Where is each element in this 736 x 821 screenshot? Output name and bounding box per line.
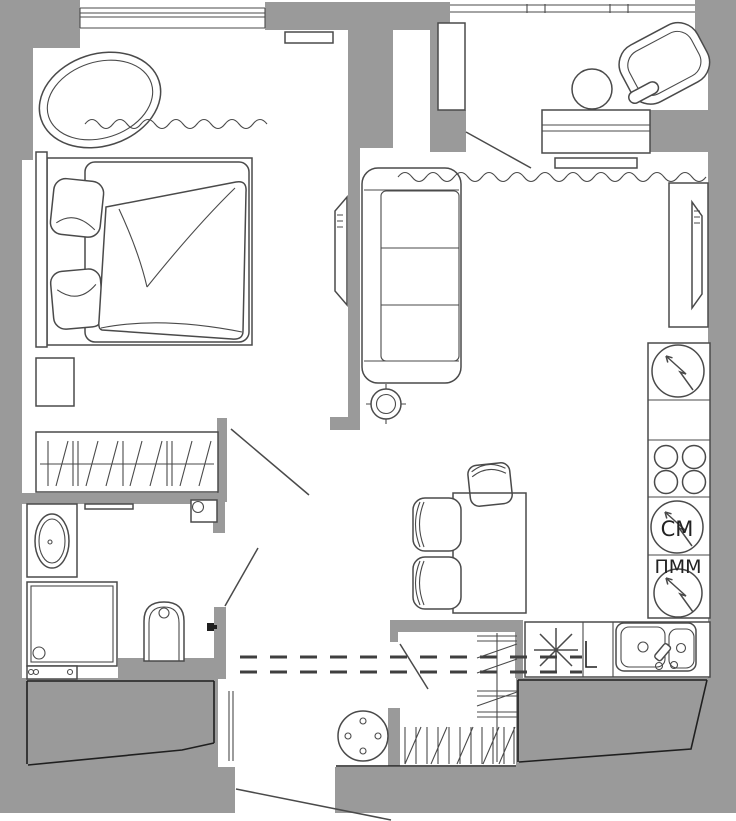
boiler-icon (191, 500, 217, 522)
dining-table (453, 493, 526, 613)
toilet-icon (144, 602, 184, 661)
floor-plan: СМ ПММ (0, 0, 736, 821)
door-handle-icon (207, 623, 214, 631)
closet-shelves (477, 633, 517, 762)
wall-kitchen-hall (390, 620, 523, 632)
entry-door-leaf (229, 691, 233, 761)
wall-bedroom-se-stub (330, 417, 360, 430)
bedroom-door-leaf (231, 429, 309, 495)
dining-stool (467, 462, 513, 507)
kitchen-door-leaf (400, 644, 428, 689)
pillow-icon (49, 177, 105, 238)
bed-blanket (99, 182, 246, 339)
double-sink-icon (616, 623, 696, 671)
living-tv-icon (692, 202, 702, 308)
balcony-window (450, 4, 695, 13)
closet-hanging-clothes (405, 727, 515, 764)
vanity-icon (27, 504, 77, 577)
nightstand (36, 358, 74, 406)
dining-chair (413, 498, 461, 551)
living-window-sill (555, 158, 637, 168)
cooktop-star-icon (534, 628, 578, 672)
wall-bedroom-east (348, 147, 360, 420)
dishwasher-label: ПММ (654, 556, 701, 578)
bathroom-door-leaf (225, 548, 258, 606)
wall-right (708, 62, 736, 813)
wall-balcony-living-block (650, 110, 708, 152)
curtain-icon (85, 120, 267, 129)
bedroom-tv-icon (335, 197, 347, 305)
wall-top-center-bar (265, 2, 450, 30)
washing-machine-label: СМ (661, 517, 694, 541)
bedroom-ac-unit (285, 32, 333, 43)
shower-icon (27, 582, 117, 679)
hall-closet-icon (405, 633, 517, 764)
door-handle-icon (214, 625, 217, 629)
bed-icon (36, 152, 252, 347)
wall-left-upper (0, 48, 33, 160)
dining-chair (413, 557, 461, 609)
bedroom (27, 37, 347, 492)
wall-corner-top-left (0, 0, 80, 48)
bed-headboard (36, 152, 47, 347)
bedroom-window (80, 8, 265, 28)
floor-plan-canvas: СМ ПММ (0, 0, 736, 821)
wall-bath-pier-lower (214, 607, 226, 679)
pillow-icon (50, 268, 105, 330)
wall-hall-pier (388, 708, 400, 766)
wall-kitchen-hall-endcap (390, 620, 398, 642)
bedroom-wardrobe-icon (36, 432, 218, 492)
pouf-icon (338, 711, 388, 761)
rug-icon (27, 37, 173, 163)
balcony-cabinet (438, 23, 465, 110)
wall-center-column (348, 30, 393, 148)
kitchen: СМ ПММ (525, 343, 710, 677)
sofa-icon (362, 168, 461, 383)
floor-lamp-icon (366, 384, 406, 424)
balcony-side-table (572, 69, 612, 109)
balcony-door-leaf (466, 132, 531, 168)
wall-balcony-west-block (430, 110, 466, 152)
dining-set (413, 462, 526, 613)
towel-rail (85, 504, 133, 509)
